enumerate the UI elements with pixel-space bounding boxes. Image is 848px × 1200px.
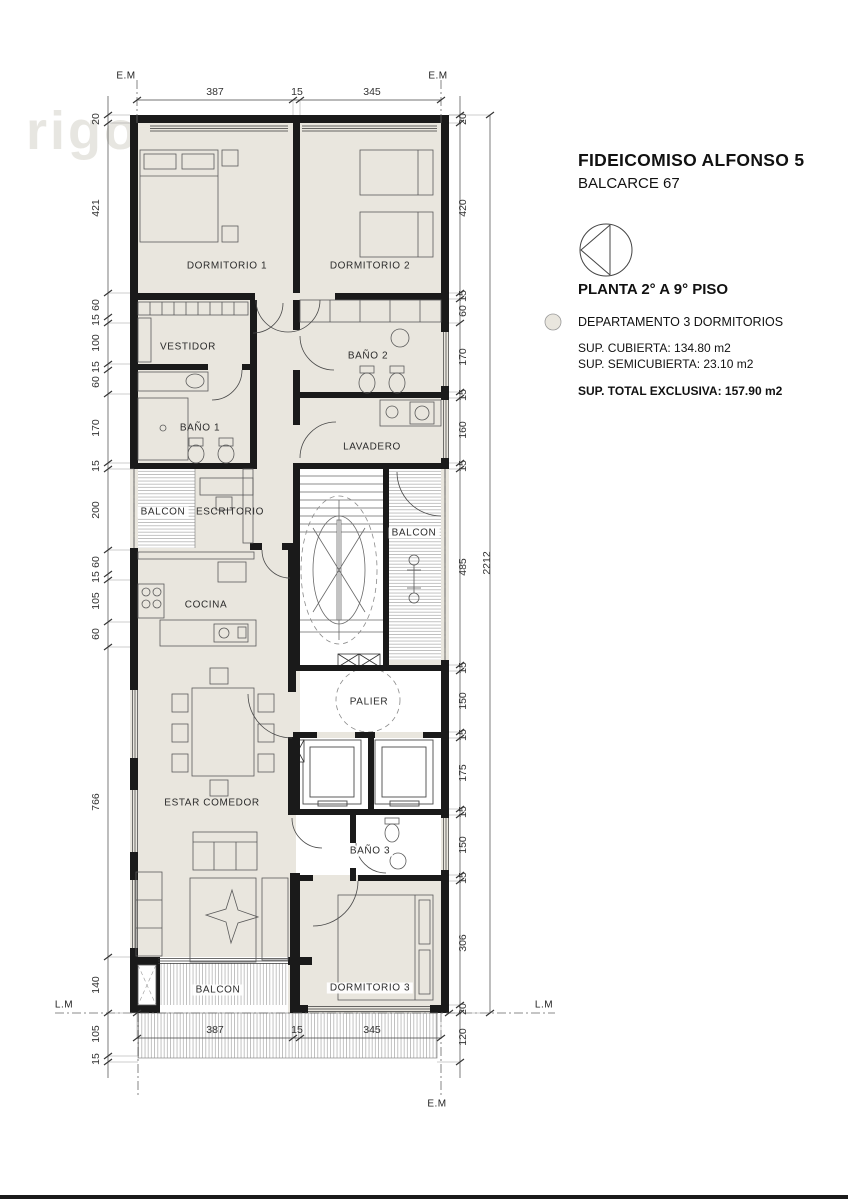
covered-area-label: SUP. CUBIERTA: 134.80 m2 — [578, 341, 731, 355]
room-label-balcon-left: BALCON — [138, 507, 189, 518]
room-label-balcon-right: BALCON — [389, 528, 440, 539]
marker-lm-left: L.M — [55, 1000, 73, 1011]
dim-left-3: 15 — [90, 314, 102, 326]
dim-top-345: 345 — [363, 86, 381, 98]
dim-right-8: 485 — [457, 558, 469, 576]
marker-lm-right: L.M — [535, 1000, 553, 1011]
room-label-dormitorio-3: DORMITORIO 3 — [327, 983, 413, 994]
dim-left-8: 15 — [90, 460, 102, 472]
floor-plan-sheet: rigo. — [0, 0, 848, 1200]
room-label-balcon-bottom: BALCON — [193, 985, 244, 996]
dim-left-1: 421 — [90, 199, 102, 217]
unit-type-dot-icon — [545, 314, 561, 330]
dim-left-5: 15 — [90, 361, 102, 373]
room-label-bano-3: BAÑO 3 — [347, 846, 393, 857]
sheet-bottom-border — [0, 1195, 848, 1199]
dim-right-13: 15 — [457, 806, 469, 818]
dim-left-13: 60 — [90, 628, 102, 640]
dim-left-bottom-1: 15 — [90, 1053, 102, 1065]
dim-left-4: 100 — [90, 334, 102, 352]
dim-bottom-15: 15 — [291, 1024, 303, 1036]
dim-right-2: 15 — [457, 290, 469, 302]
room-label-bano-1: BAÑO 1 — [180, 423, 220, 434]
project-address: BALCARCE 67 — [578, 175, 680, 192]
dim-left-15: 140 — [90, 976, 102, 994]
marker-em-top-right: E.M — [428, 71, 447, 82]
dim-right-12: 175 — [457, 764, 469, 782]
marker-em-top-left: E.M — [116, 71, 135, 82]
room-label-dormitorio-1: DORMITORIO 1 — [187, 261, 267, 272]
dim-right-6: 160 — [457, 421, 469, 439]
dim-right-17: 20 — [457, 1003, 469, 1015]
dim-left-6: 60 — [90, 376, 102, 388]
dim-left-14: 766 — [90, 793, 102, 811]
dim-right-1: 420 — [457, 199, 469, 217]
room-label-vestidor: VESTIDOR — [160, 342, 216, 353]
dim-right-10: 150 — [457, 692, 469, 710]
dim-right-7: 15 — [457, 460, 469, 472]
dim-bottom-345: 345 — [363, 1024, 381, 1036]
unit-type-label: DEPARTAMENTO 3 DORMITORIOS — [578, 315, 783, 329]
dim-left-2: 60 — [90, 299, 102, 311]
north-arrow-icon — [580, 224, 632, 276]
dim-right-14: 150 — [457, 836, 469, 854]
marker-em-bottom: E.M — [427, 1099, 446, 1110]
dim-right-bottom-0: 120 — [457, 1028, 469, 1046]
dim-right-11: 15 — [457, 729, 469, 741]
total-area-label: SUP. TOTAL EXCLUSIVA: 157.90 m2 — [578, 384, 782, 398]
room-label-cocina: COCINA — [185, 600, 228, 611]
project-title: FIDEICOMISO ALFONSO 5 — [578, 150, 804, 171]
room-label-palier: PALIER — [350, 697, 388, 708]
dim-total-height: 2212 — [481, 551, 493, 574]
dim-left-bottom-0: 105 — [90, 1025, 102, 1043]
dim-right-15: 15 — [457, 872, 469, 884]
room-label-estar-comedor: ESTAR COMEDOR — [164, 798, 259, 809]
dim-top-387: 387 — [206, 86, 224, 98]
dim-right-5: 15 — [457, 389, 469, 401]
room-label-dormitorio-2: DORMITORIO 2 — [330, 261, 410, 272]
floor-plan-drawing — [0, 0, 848, 1200]
dim-left-10: 60 — [90, 556, 102, 568]
dim-left-11: 15 — [90, 571, 102, 583]
dim-bottom-387: 387 — [206, 1024, 224, 1036]
dim-right-4: 170 — [457, 348, 469, 366]
room-label-bano-2: BAÑO 2 — [348, 351, 388, 362]
dim-top-15: 15 — [291, 86, 303, 98]
plan-level-label: PLANTA 2° A 9° PISO — [578, 281, 728, 298]
room-label-lavadero: LAVADERO — [343, 442, 401, 453]
semicovered-area-label: SUP. SEMICUBIERTA: 23.10 m2 — [578, 357, 753, 371]
dim-right-3: 60 — [457, 305, 469, 317]
room-label-escritorio: ESCRITORIO — [196, 507, 264, 518]
balcony-planter — [138, 965, 156, 1005]
dim-left-9: 200 — [90, 501, 102, 519]
dim-left-12: 105 — [90, 592, 102, 610]
dim-right-16: 306 — [457, 934, 469, 952]
dim-left-0: 20 — [90, 113, 102, 125]
dim-right-0: 20 — [457, 113, 469, 125]
dim-right-9: 15 — [457, 662, 469, 674]
dim-left-7: 170 — [90, 419, 102, 437]
